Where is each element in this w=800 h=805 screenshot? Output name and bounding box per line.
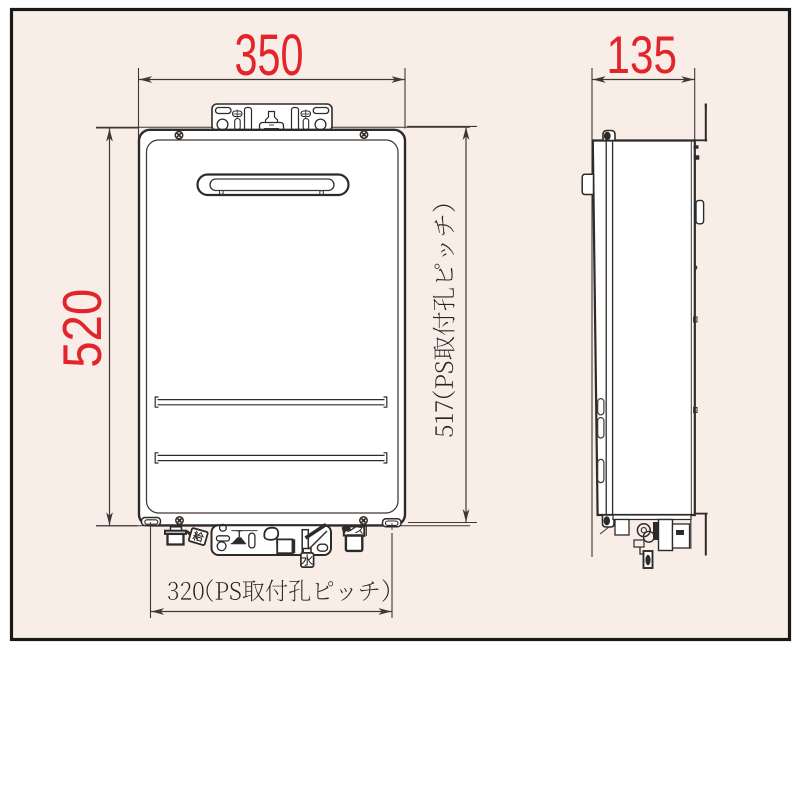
svg-text:135: 135	[607, 26, 678, 85]
svg-text:350: 350	[235, 23, 304, 88]
svg-text:520: 520	[52, 289, 113, 368]
